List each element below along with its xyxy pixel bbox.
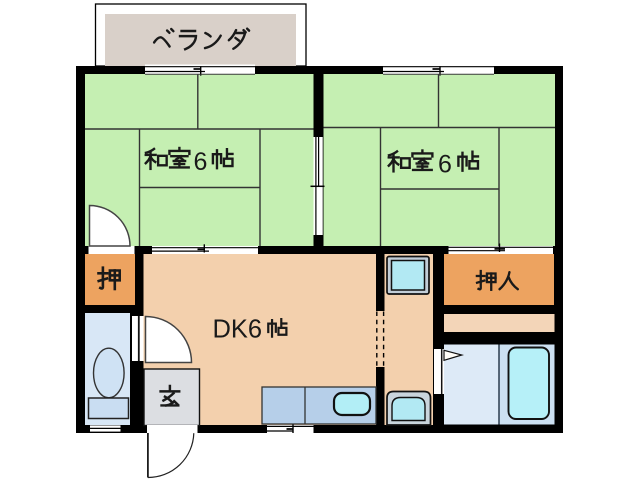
svg-text:DK6: DK6 [213, 316, 263, 344]
svg-text:6: 6 [194, 148, 208, 176]
svg-text:6: 6 [438, 151, 452, 179]
